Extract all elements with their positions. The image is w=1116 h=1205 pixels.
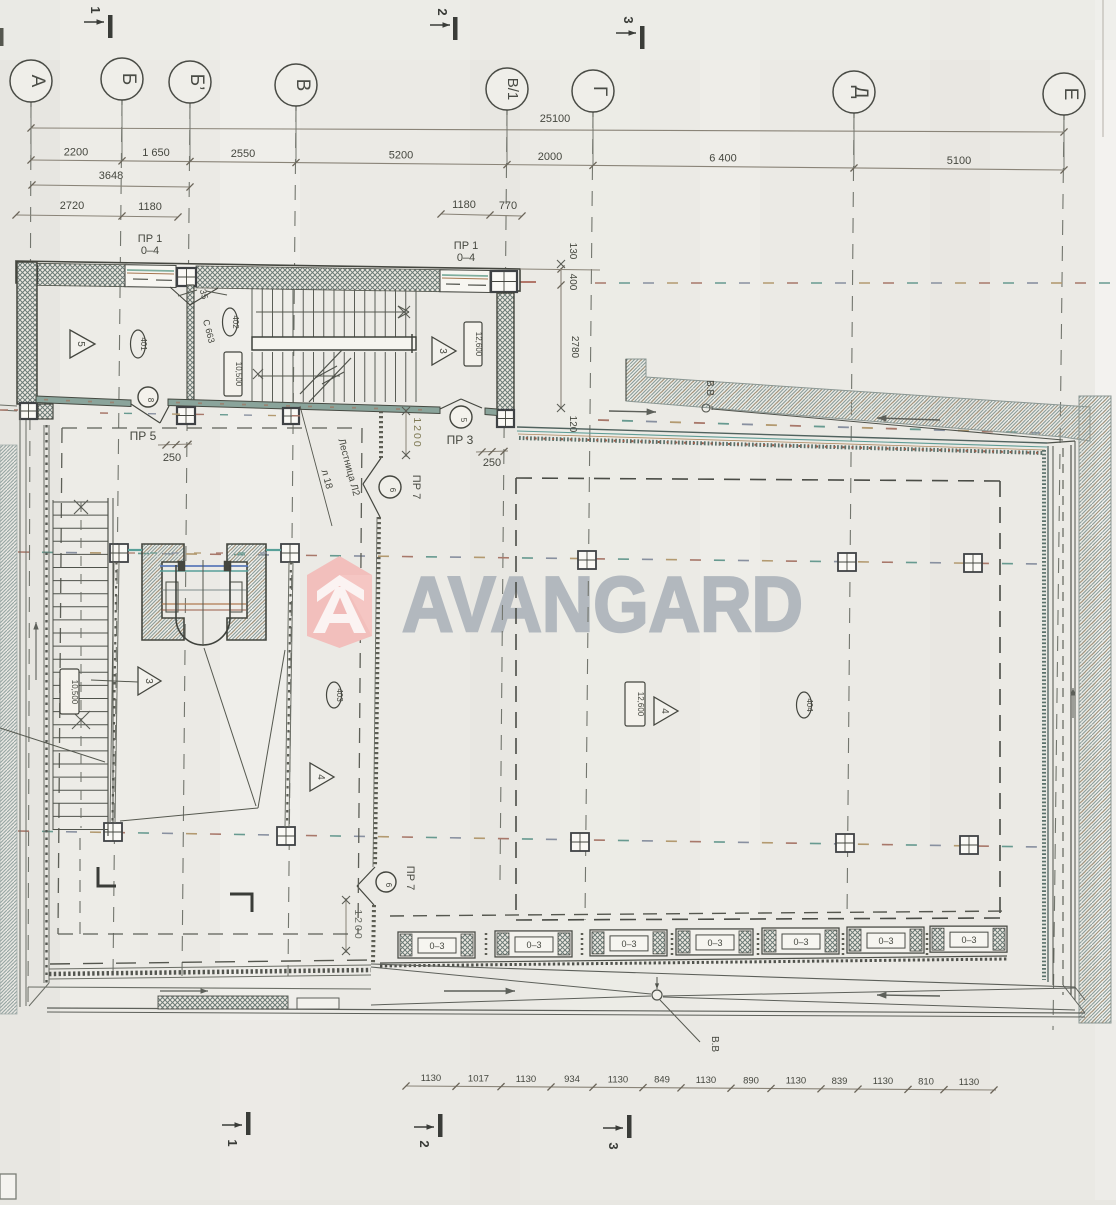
svg-text:1 650: 1 650 bbox=[142, 147, 170, 159]
svg-text:2200: 2200 bbox=[64, 146, 88, 158]
svg-text:1130: 1130 bbox=[696, 1075, 716, 1086]
svg-text:2550: 2550 bbox=[231, 148, 255, 160]
svg-text:10,500: 10,500 bbox=[234, 362, 243, 387]
svg-text:2: 2 bbox=[435, 8, 450, 15]
svg-text:Б’: Б’ bbox=[186, 74, 207, 91]
svg-text:2: 2 bbox=[417, 1140, 432, 1147]
svg-text:3: 3 bbox=[606, 1142, 621, 1149]
svg-text:4: 4 bbox=[659, 708, 670, 714]
svg-text:0–3: 0–3 bbox=[621, 939, 636, 949]
svg-text:Е: Е bbox=[1060, 88, 1081, 101]
svg-text:Б: Б bbox=[118, 73, 139, 85]
svg-text:3: 3 bbox=[437, 348, 448, 354]
svg-text:1: 1 bbox=[88, 6, 103, 13]
svg-text:5: 5 bbox=[459, 418, 468, 423]
svg-text:ПР 3: ПР 3 bbox=[447, 433, 474, 447]
svg-text:2000: 2000 bbox=[538, 151, 562, 163]
svg-text:А: А bbox=[27, 75, 48, 88]
svg-text:0–3: 0–3 bbox=[961, 935, 976, 945]
svg-text:934: 934 bbox=[564, 1074, 580, 1085]
svg-text:890: 890 bbox=[743, 1075, 759, 1086]
svg-text:0–3: 0–3 bbox=[429, 941, 444, 951]
svg-text:400: 400 bbox=[567, 274, 578, 291]
svg-text:0–4: 0–4 bbox=[457, 252, 475, 264]
svg-text:0–3: 0–3 bbox=[793, 937, 808, 947]
svg-text:В.В: В.В bbox=[709, 1036, 720, 1052]
svg-text:1130: 1130 bbox=[421, 1073, 441, 1084]
svg-text:0–3: 0–3 bbox=[526, 940, 541, 950]
svg-text:1180: 1180 bbox=[138, 201, 162, 213]
svg-text:2720: 2720 bbox=[60, 200, 84, 212]
svg-text:250: 250 bbox=[163, 452, 181, 464]
svg-text:404: 404 bbox=[805, 698, 814, 712]
svg-text:0–3: 0–3 bbox=[707, 938, 722, 948]
svg-text:3: 3 bbox=[621, 16, 636, 23]
svg-text:ПР 7: ПР 7 bbox=[404, 866, 416, 890]
svg-text:25100: 25100 bbox=[540, 113, 571, 125]
svg-text:ПР 1: ПР 1 bbox=[454, 240, 478, 252]
svg-text:403: 403 bbox=[335, 688, 344, 702]
svg-text:3: 3 bbox=[143, 678, 154, 684]
svg-text:1130: 1130 bbox=[786, 1076, 806, 1087]
svg-text:В.В: В.В bbox=[704, 380, 715, 396]
svg-text:849: 849 bbox=[654, 1075, 670, 1086]
svg-text:130: 130 bbox=[567, 243, 578, 260]
svg-text:1180: 1180 bbox=[452, 199, 476, 211]
svg-text:0–4: 0–4 bbox=[141, 245, 159, 257]
svg-text:1130: 1130 bbox=[873, 1076, 893, 1087]
svg-text:6: 6 bbox=[388, 488, 397, 493]
svg-text:2780: 2780 bbox=[569, 336, 580, 359]
svg-text:ПР 7: ПР 7 bbox=[410, 475, 422, 499]
svg-text:Д: Д bbox=[850, 86, 871, 99]
svg-text:1130: 1130 bbox=[516, 1074, 536, 1085]
svg-text:770: 770 bbox=[499, 200, 517, 212]
svg-text:6: 6 bbox=[384, 883, 393, 888]
svg-text:ПР 1: ПР 1 bbox=[138, 233, 162, 245]
svg-text:1200: 1200 bbox=[411, 417, 423, 448]
svg-text:1130: 1130 bbox=[608, 1074, 628, 1085]
svg-text:6 400: 6 400 bbox=[709, 153, 737, 165]
svg-text:810: 810 bbox=[918, 1077, 934, 1088]
svg-text:AVANGARD: AVANGARD bbox=[402, 560, 803, 648]
svg-text:1130: 1130 bbox=[959, 1077, 979, 1088]
svg-text:8: 8 bbox=[146, 398, 155, 403]
svg-text:401: 401 bbox=[139, 337, 148, 351]
svg-text:4: 4 bbox=[315, 774, 326, 780]
svg-text:В/1: В/1 bbox=[504, 78, 521, 101]
svg-text:5200: 5200 bbox=[389, 150, 413, 162]
svg-text:5100: 5100 bbox=[947, 155, 971, 167]
svg-text:839: 839 bbox=[832, 1076, 848, 1087]
svg-text:10,500: 10,500 bbox=[70, 680, 79, 705]
svg-text:Г: Г bbox=[589, 86, 610, 96]
svg-text:120: 120 bbox=[567, 416, 578, 433]
svg-text:12,600: 12,600 bbox=[474, 332, 483, 357]
svg-text:3648: 3648 bbox=[99, 170, 123, 182]
svg-text:5: 5 bbox=[75, 341, 86, 347]
svg-text:ПР 5: ПР 5 bbox=[130, 429, 157, 443]
svg-text:1017: 1017 bbox=[468, 1073, 489, 1084]
svg-text:250: 250 bbox=[483, 457, 501, 469]
svg-text:12,600: 12,600 bbox=[636, 692, 645, 717]
svg-text:0–3: 0–3 bbox=[878, 936, 893, 946]
svg-text:В: В bbox=[292, 79, 313, 92]
svg-text:402: 402 bbox=[231, 315, 240, 329]
svg-text:1: 1 bbox=[225, 1139, 240, 1146]
